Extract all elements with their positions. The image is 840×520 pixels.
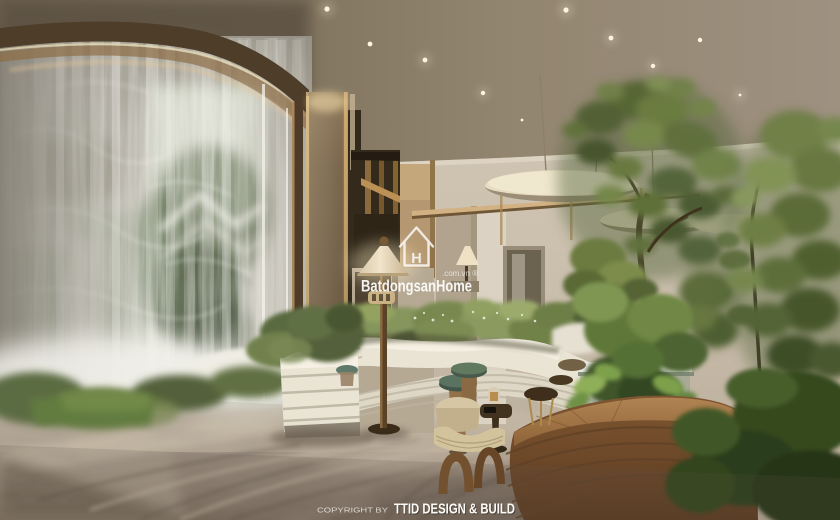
svg-text:COPYRIGHT BY: COPYRIGHT BY: [317, 506, 388, 515]
svg-text:BatdongsanHome: BatdongsanHome: [361, 277, 472, 296]
svg-text:TTID DESIGN & BUILD: TTID DESIGN & BUILD: [394, 501, 515, 518]
svg-text:H: H: [411, 251, 421, 267]
